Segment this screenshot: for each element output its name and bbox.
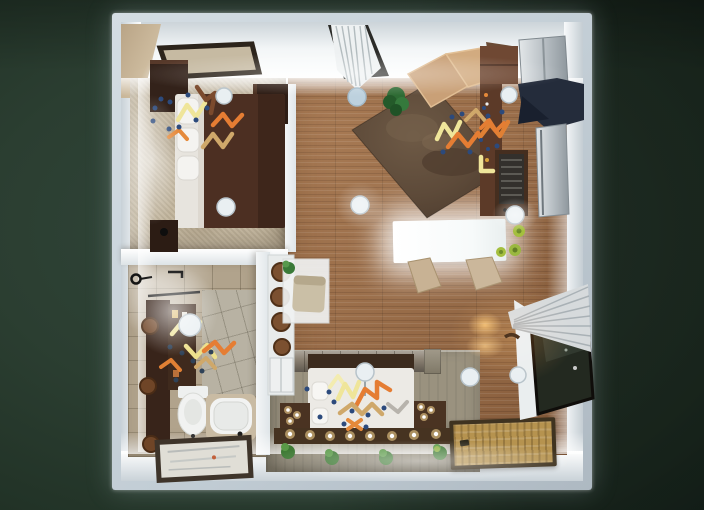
bedroom-partition-wall <box>285 84 296 252</box>
stone-headboard-wall <box>286 351 440 372</box>
bathroom-partition-wall <box>256 252 270 455</box>
floorplan-render-canvas[interactable] <box>0 0 704 510</box>
stone-wall-end-block <box>424 349 441 374</box>
kitchen-island-counter <box>393 219 507 263</box>
top-wall-face <box>121 22 583 82</box>
woven-entry-mat <box>449 417 557 470</box>
shower-tile-area <box>202 290 258 396</box>
bedroom-carpet <box>130 78 286 251</box>
